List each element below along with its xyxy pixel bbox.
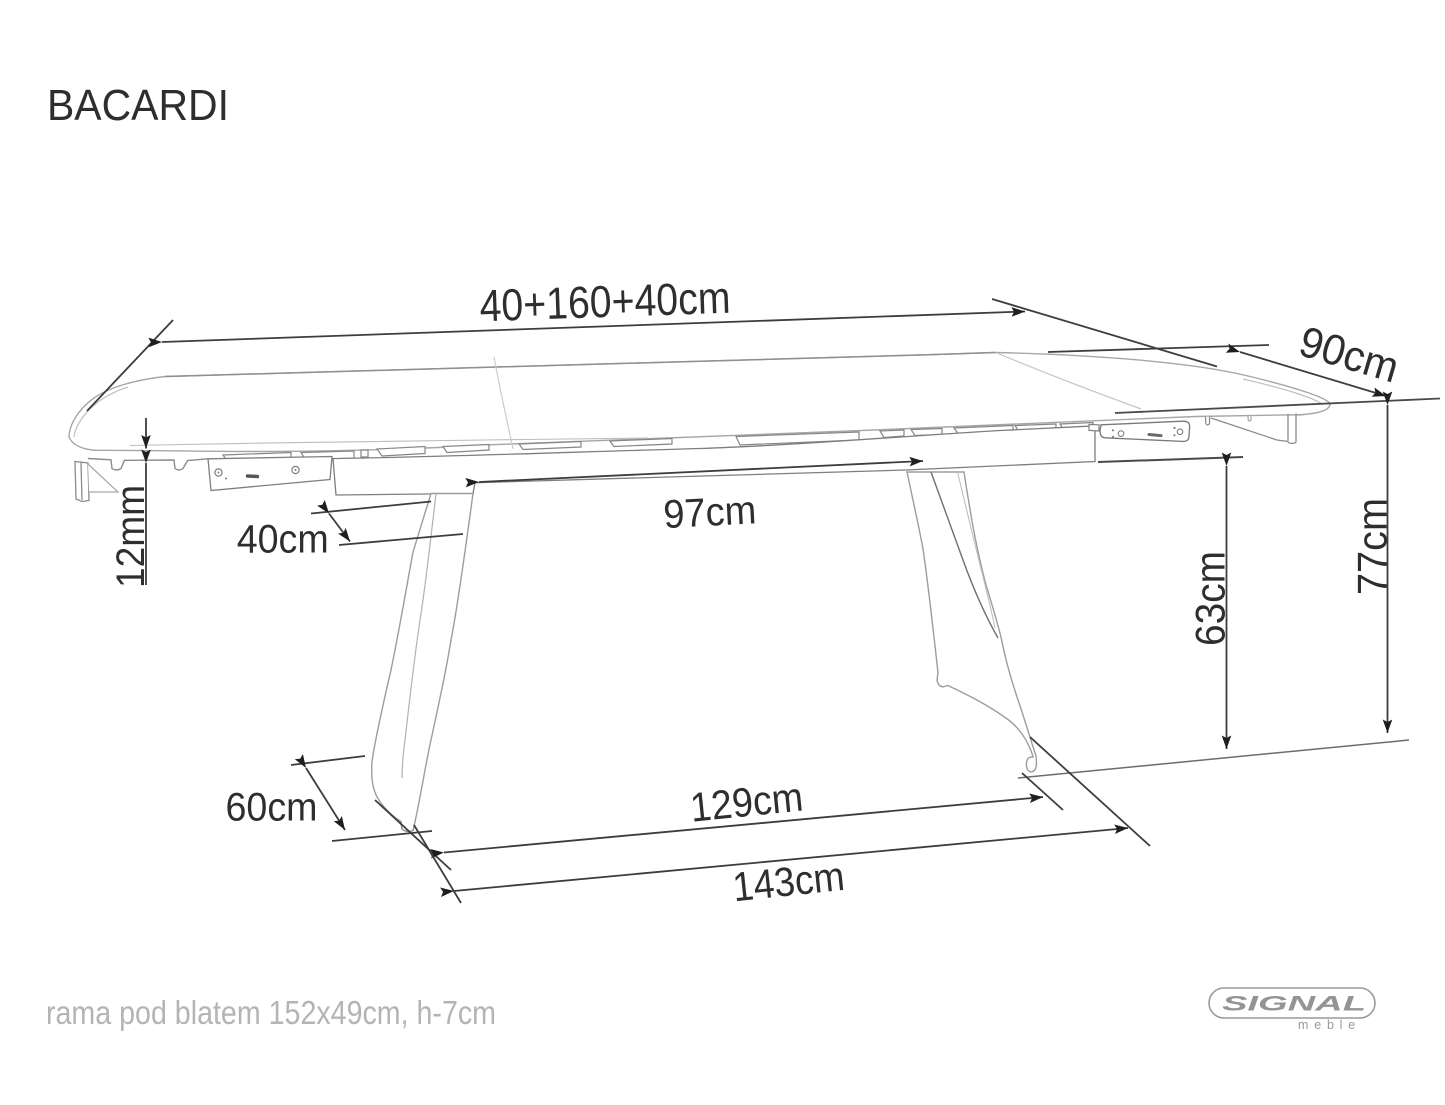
svg-text:40+160+40cm: 40+160+40cm bbox=[479, 272, 732, 332]
svg-text:97cm: 97cm bbox=[662, 488, 757, 537]
svg-text:BACARDI: BACARDI bbox=[47, 81, 229, 130]
svg-text:60cm: 60cm bbox=[226, 786, 318, 830]
svg-text:SIGNAL: SIGNAL bbox=[1222, 993, 1366, 1016]
svg-text:63cm: 63cm bbox=[1187, 551, 1234, 646]
svg-text:77cm: 77cm bbox=[1349, 498, 1396, 595]
svg-text:12mm: 12mm bbox=[109, 485, 153, 588]
svg-text:rama pod blatem 152x49cm, h-7c: rama pod blatem 152x49cm, h-7cm bbox=[46, 994, 496, 1031]
svg-text:meble: meble bbox=[1298, 1017, 1361, 1032]
svg-text:40cm: 40cm bbox=[237, 518, 329, 562]
